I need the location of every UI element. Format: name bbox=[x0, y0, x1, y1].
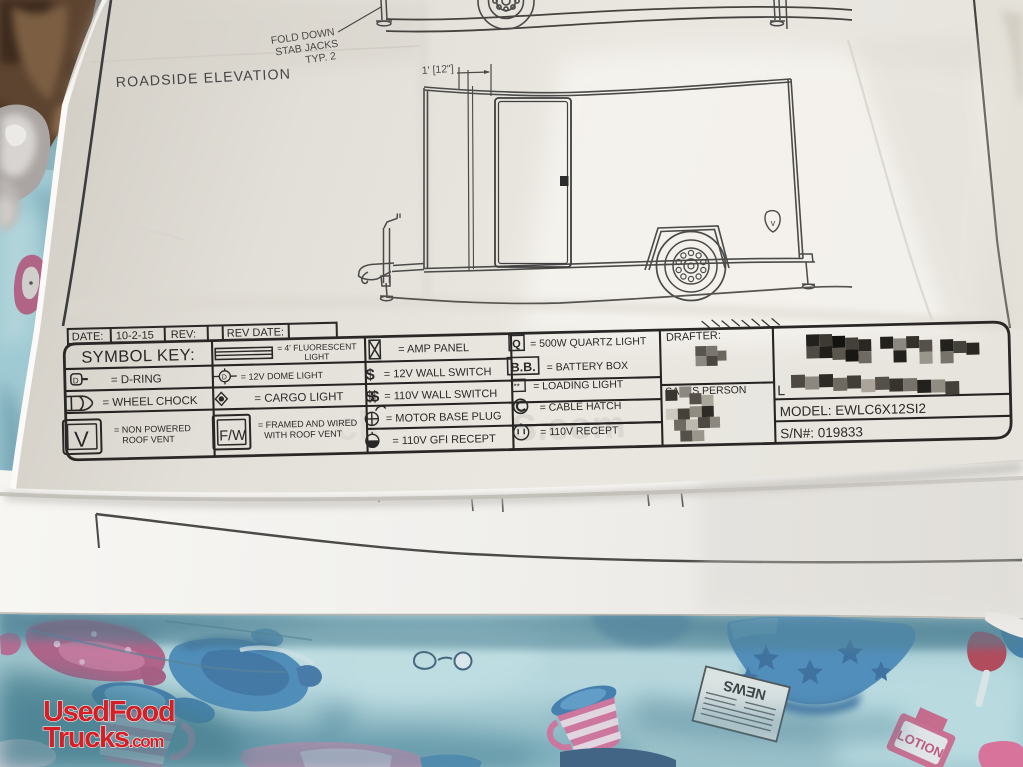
svg-text:= BATTERY BOX: = BATTERY BOX bbox=[547, 360, 629, 374]
svg-text:SYMBOL KEY:: SYMBOL KEY: bbox=[81, 346, 195, 367]
svg-text:L: L bbox=[777, 382, 785, 398]
svg-text:= 12V DOME LIGHT: = 12V DOME LIGHT bbox=[241, 370, 324, 382]
svg-text:$: $ bbox=[366, 367, 375, 384]
svg-text:= D-RING: = D-RING bbox=[111, 373, 162, 386]
svg-text:= CARGO LIGHT: = CARGO LIGHT bbox=[254, 391, 343, 405]
svg-text:LIGHT: LIGHT bbox=[304, 351, 329, 362]
svg-text:**: ** bbox=[514, 382, 520, 391]
svg-text:= AMP PANEL: = AMP PANEL bbox=[398, 342, 469, 356]
svg-text:= 110V GFI RECEPT: = 110V GFI RECEPT bbox=[392, 433, 496, 447]
svg-text:B.B.: B.B. bbox=[511, 360, 536, 375]
svg-text:V: V bbox=[74, 427, 90, 452]
svg-text:= 12V WALL SWITCH: = 12V WALL SWITCH bbox=[384, 366, 492, 381]
svg-text:D: D bbox=[222, 374, 227, 381]
svg-text:$: $ bbox=[370, 389, 379, 406]
svg-text:= LOADING LIGHT: = LOADING LIGHT bbox=[533, 378, 624, 392]
svg-text:S/N#: 019833: S/N#: 019833 bbox=[780, 424, 863, 441]
svg-text:1' [12"]: 1' [12"] bbox=[421, 63, 454, 77]
svg-text:DRAFTER:: DRAFTER: bbox=[666, 330, 721, 344]
svg-text:Q: Q bbox=[512, 338, 521, 350]
svg-text:= WHEEL CHOCK: = WHEEL CHOCK bbox=[102, 395, 198, 409]
svg-text:ROOF VENT: ROOF VENT bbox=[122, 434, 175, 445]
svg-text:10-2-15: 10-2-15 bbox=[116, 329, 154, 342]
svg-text:= NON POWERED: = NON POWERED bbox=[114, 423, 191, 435]
svg-text:WITH ROOF VENT: WITH ROOF VENT bbox=[264, 429, 343, 441]
svg-text:= CABLE HATCH: = CABLE HATCH bbox=[539, 400, 621, 414]
svg-text:D: D bbox=[73, 376, 79, 385]
svg-text:F/W: F/W bbox=[219, 428, 246, 445]
svg-text:REV:: REV: bbox=[171, 328, 197, 341]
svg-text:v: v bbox=[771, 218, 776, 228]
svg-text:DATE:: DATE: bbox=[72, 331, 104, 344]
svg-text:= 110V RECEPT: = 110V RECEPT bbox=[540, 425, 619, 439]
